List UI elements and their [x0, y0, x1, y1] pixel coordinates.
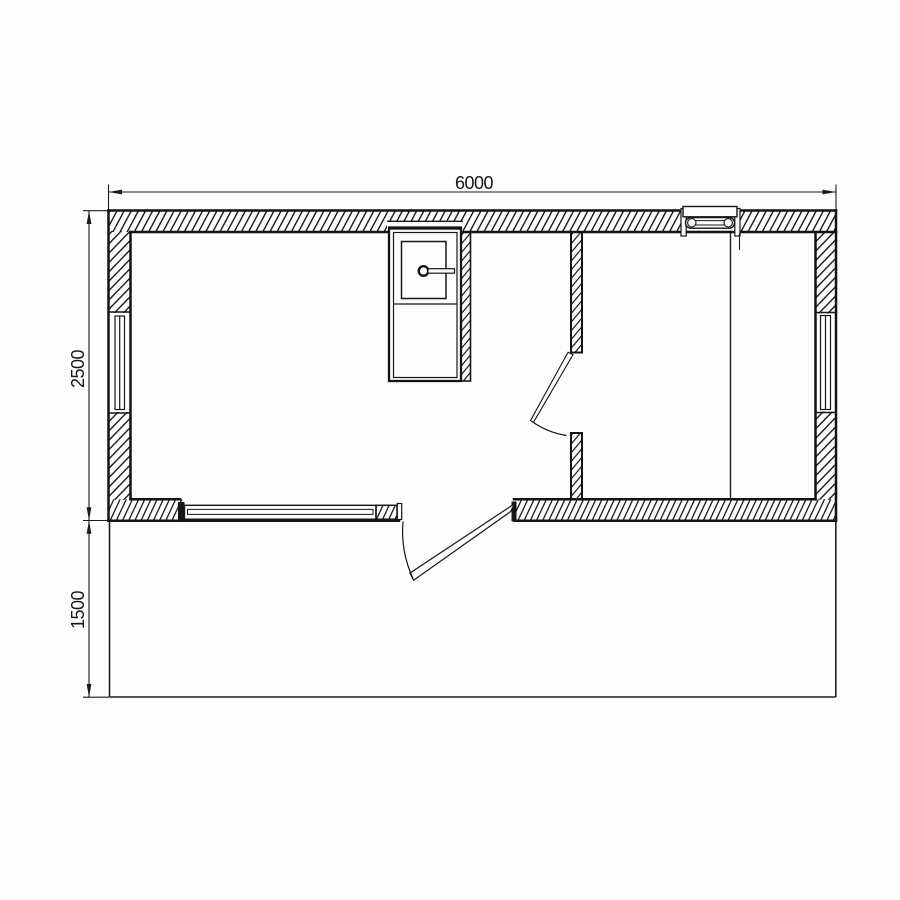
svg-text:6000: 6000: [455, 173, 494, 193]
svg-text:1500: 1500: [68, 590, 88, 629]
svg-text:2500: 2500: [68, 349, 88, 388]
